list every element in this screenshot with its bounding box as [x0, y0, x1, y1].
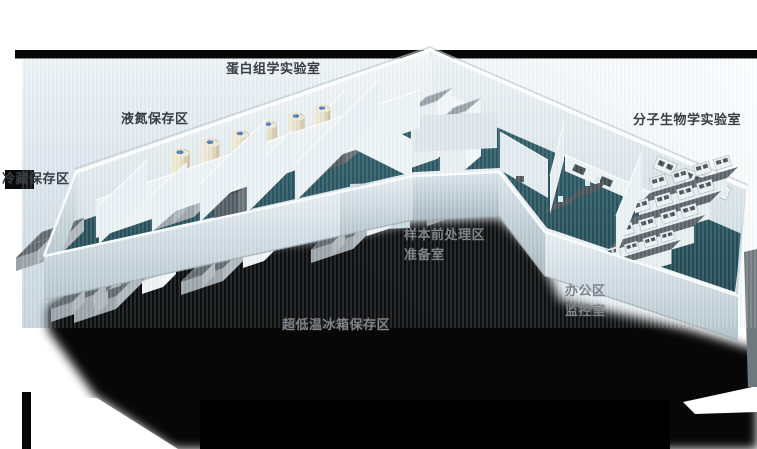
lab-floorplan-screenshot: 蛋白组学实验室 液氮保存区 冷藏保存区 分子生物学实验室 样本前处理区 准备室 … — [0, 0, 757, 449]
lab-3d-render — [0, 0, 757, 449]
